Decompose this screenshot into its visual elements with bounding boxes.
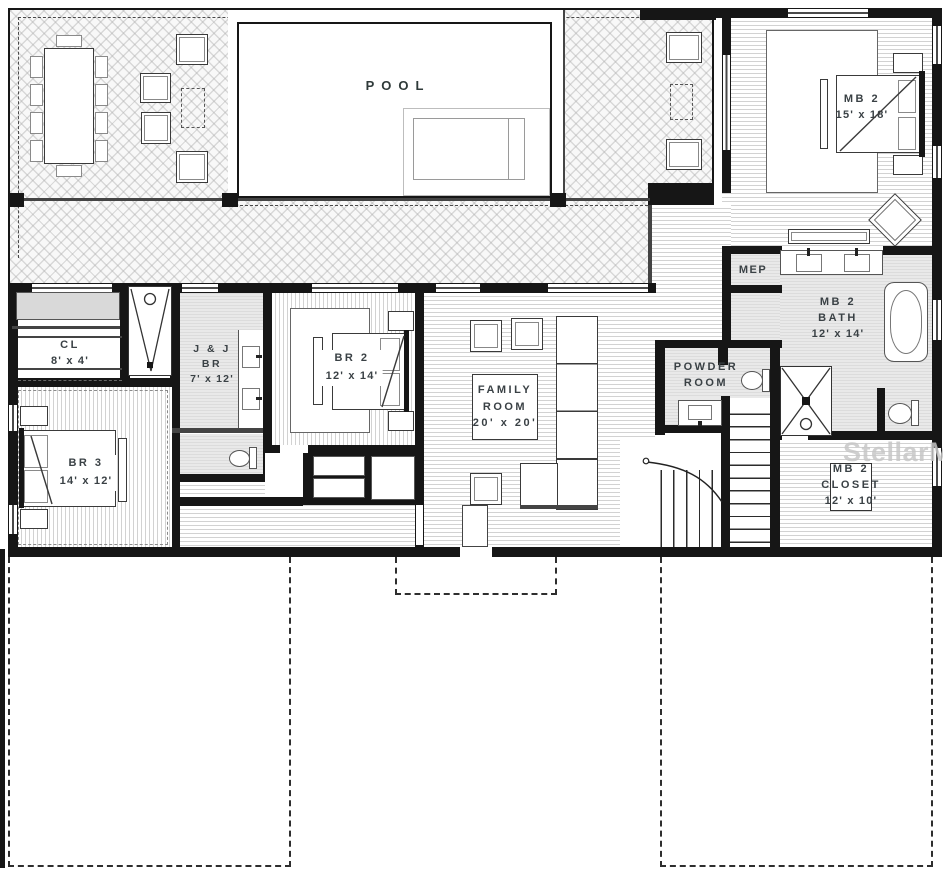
dining-chair bbox=[95, 56, 108, 78]
dining-chair bbox=[95, 140, 108, 162]
mep-label-name: MEP bbox=[739, 264, 767, 276]
headboard bbox=[19, 428, 24, 508]
stairs-winder bbox=[649, 470, 721, 547]
wall bbox=[640, 8, 716, 20]
wall bbox=[172, 497, 303, 506]
mb2-bath-label: MB 2 BATH 12' x 14' bbox=[812, 295, 865, 343]
dining-chair bbox=[30, 84, 43, 106]
outdoor-side-table bbox=[181, 88, 205, 128]
faucet bbox=[807, 248, 810, 256]
window bbox=[788, 9, 868, 17]
wardrobe bbox=[313, 456, 365, 476]
wall bbox=[722, 246, 782, 254]
wall bbox=[648, 205, 652, 283]
sink bbox=[796, 254, 822, 272]
br3-label-name: BR 3 bbox=[56, 455, 117, 473]
toilet-bowl bbox=[888, 403, 912, 424]
pillow bbox=[898, 80, 916, 113]
nightstand bbox=[388, 411, 414, 431]
sink bbox=[844, 254, 870, 272]
mb2-label: MB 2 15' x 18' bbox=[836, 92, 889, 124]
family-label-name1: FAMILY bbox=[478, 382, 532, 399]
outdoor-side-table bbox=[670, 84, 693, 120]
pool-shelf-step-line bbox=[508, 118, 509, 180]
bathtub bbox=[884, 282, 928, 362]
wardrobe bbox=[371, 456, 415, 500]
sectional-sofa bbox=[556, 316, 598, 510]
pool-label-text: POOL bbox=[362, 77, 435, 94]
cl-label: CL 8' x 4' bbox=[51, 338, 89, 370]
bath-entry-floor bbox=[731, 293, 780, 347]
window bbox=[723, 55, 730, 150]
mb2-closet-label: MB 2 CLOSET 12' x 10' bbox=[821, 462, 881, 510]
pool-label: POOL bbox=[362, 78, 435, 93]
door-opening bbox=[280, 445, 308, 453]
dining-table bbox=[44, 48, 94, 164]
closet-label-name2: CLOSET bbox=[821, 478, 881, 494]
dining-chair bbox=[95, 112, 108, 134]
bed-bench bbox=[820, 79, 828, 149]
lounge-chair bbox=[141, 112, 171, 144]
lounge-chair bbox=[140, 73, 171, 103]
window bbox=[32, 284, 112, 292]
column bbox=[222, 193, 238, 207]
dining-chair bbox=[95, 84, 108, 106]
faucet bbox=[698, 421, 702, 426]
armchair bbox=[470, 473, 502, 505]
family-room-label: FAMILY ROOM 20' x 20' bbox=[472, 374, 538, 440]
wall bbox=[722, 285, 782, 293]
sofa-chaise bbox=[520, 463, 558, 507]
door-opening bbox=[416, 505, 423, 545]
front-door-opening bbox=[460, 547, 492, 557]
nightstand bbox=[20, 509, 48, 529]
dining-chair bbox=[56, 165, 82, 177]
closet-label-dims: 12' x 10' bbox=[821, 494, 881, 510]
mep-label: MEP bbox=[739, 263, 767, 279]
pillow bbox=[898, 117, 916, 150]
wardrobe bbox=[313, 478, 365, 498]
dining-chair bbox=[56, 35, 82, 47]
faucet bbox=[256, 397, 262, 400]
armchair bbox=[511, 318, 543, 350]
front-door-leaf bbox=[462, 505, 488, 547]
lounge-chair bbox=[666, 139, 702, 170]
pillow bbox=[24, 435, 48, 468]
mb2-label-name: MB 2 bbox=[836, 92, 889, 108]
closet-door-area bbox=[265, 453, 303, 497]
door-opening bbox=[182, 284, 218, 292]
br2-label-dims: 12' x 14' bbox=[322, 368, 383, 386]
sliding-door bbox=[548, 284, 648, 292]
lounge-chair bbox=[666, 32, 702, 63]
jj-label-name2: BR bbox=[190, 357, 234, 372]
terrace-roofline bbox=[230, 205, 708, 206]
family-label-name2: ROOM bbox=[483, 399, 527, 416]
armchair bbox=[470, 320, 502, 352]
window bbox=[933, 26, 941, 64]
jj-label: J & J BR 7' x 12' bbox=[190, 342, 234, 388]
watermark: StellarMLS bbox=[843, 437, 943, 468]
mb2-label-dims: 15' x 18' bbox=[836, 108, 889, 124]
toilet-bowl bbox=[741, 371, 763, 390]
faucet bbox=[855, 248, 858, 256]
wall bbox=[877, 388, 885, 433]
wall bbox=[721, 396, 730, 547]
nightstand bbox=[388, 311, 414, 331]
nightstand bbox=[893, 155, 923, 175]
br3-label-dims: 14' x 12' bbox=[56, 473, 117, 491]
powder-label-name2: ROOM bbox=[674, 376, 739, 392]
headboard bbox=[919, 71, 925, 157]
garage-outline bbox=[8, 557, 291, 867]
jj-label-dims: 7' x 12' bbox=[190, 372, 234, 387]
cl-label-dims: 8' x 4' bbox=[51, 354, 89, 370]
headboard bbox=[404, 330, 409, 412]
wall bbox=[12, 326, 128, 329]
toilet-tank bbox=[249, 447, 257, 469]
family-label-dims: 20' x 20' bbox=[473, 415, 537, 432]
wall bbox=[770, 347, 780, 547]
built-in-cabinet bbox=[16, 292, 120, 320]
toilet-tank bbox=[762, 369, 770, 392]
shower bbox=[128, 286, 172, 376]
bath-label-name2: BATH bbox=[812, 311, 865, 327]
deck-edge-line bbox=[563, 10, 565, 198]
bath-label-dims: 12' x 14' bbox=[812, 327, 865, 343]
window bbox=[9, 405, 17, 431]
vanity bbox=[238, 330, 263, 428]
window bbox=[933, 146, 941, 178]
window bbox=[436, 284, 480, 292]
lower-level-outline bbox=[660, 557, 933, 867]
faucet bbox=[256, 355, 262, 358]
wall bbox=[883, 246, 941, 255]
jj-label-name1: J & J bbox=[190, 342, 234, 357]
bed-bench bbox=[118, 438, 127, 502]
br3-label: BR 3 14' x 12' bbox=[56, 455, 117, 491]
corridor-floor bbox=[652, 205, 731, 345]
wall bbox=[655, 425, 730, 433]
bath-label-name1: MB 2 bbox=[812, 295, 865, 311]
window bbox=[9, 505, 17, 534]
lounge-chair bbox=[176, 151, 208, 183]
wall bbox=[655, 340, 665, 435]
column bbox=[550, 193, 566, 207]
wall bbox=[648, 183, 714, 205]
wall bbox=[172, 474, 272, 482]
stairs-straight-flight bbox=[730, 402, 770, 547]
closet-rod-line bbox=[18, 380, 122, 381]
shower bbox=[780, 366, 832, 436]
window bbox=[312, 284, 398, 292]
br2-label: BR 2 12' x 14' bbox=[322, 350, 383, 386]
powder-label: POWDER ROOM bbox=[674, 360, 739, 392]
toilet-tank bbox=[911, 400, 919, 426]
wall bbox=[722, 246, 731, 347]
pillow bbox=[380, 373, 400, 406]
entry-stoop-outline bbox=[395, 557, 557, 595]
nightstand bbox=[893, 53, 923, 73]
column bbox=[8, 193, 24, 207]
wall bbox=[172, 378, 180, 557]
lounge-chair bbox=[176, 34, 208, 65]
dining-chair bbox=[30, 112, 43, 134]
toilet-bowl bbox=[229, 450, 250, 467]
wall-edge bbox=[0, 549, 5, 868]
console-table bbox=[788, 229, 870, 244]
sink bbox=[688, 405, 712, 420]
dining-chair bbox=[30, 140, 43, 162]
br2-label-name: BR 2 bbox=[322, 350, 383, 368]
floor-plan: POOL MB 2 15' x 18' bbox=[0, 0, 943, 893]
pillow bbox=[380, 338, 400, 371]
pillow bbox=[24, 470, 48, 503]
sofa-base bbox=[520, 505, 598, 509]
nightstand bbox=[20, 406, 48, 426]
window bbox=[933, 300, 941, 340]
cl-label-name: CL bbox=[51, 338, 89, 354]
wall bbox=[172, 428, 263, 433]
dining-chair bbox=[30, 56, 43, 78]
powder-label-name1: POWDER bbox=[674, 360, 739, 376]
